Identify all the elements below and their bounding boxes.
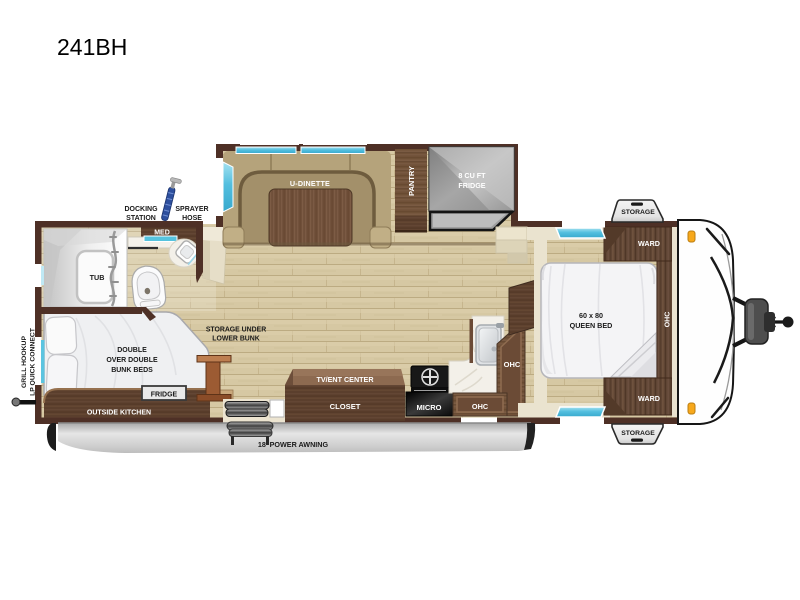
svg-text:SPRAYER: SPRAYER: [175, 206, 208, 213]
svg-text:CLOSET: CLOSET: [330, 402, 361, 411]
svg-text:OUTSIDE KITCHEN: OUTSIDE KITCHEN: [87, 410, 151, 417]
svg-text:HOSE: HOSE: [182, 215, 202, 222]
svg-text:QUEEN BED: QUEEN BED: [570, 321, 613, 330]
svg-text:WARD: WARD: [638, 239, 660, 248]
svg-text:OVER DOUBLE: OVER DOUBLE: [106, 357, 158, 364]
svg-text:TV/ENT CENTER: TV/ENT CENTER: [316, 375, 374, 384]
svg-text:8 CU FT: 8 CU FT: [458, 171, 486, 180]
svg-text:LOWER BUNK: LOWER BUNK: [212, 336, 259, 343]
svg-text:FRIDGE: FRIDGE: [458, 181, 485, 190]
svg-text:PANTRY: PANTRY: [407, 166, 416, 196]
svg-text:OHC: OHC: [472, 402, 489, 411]
svg-text:OHC: OHC: [504, 360, 521, 369]
svg-text:WARD: WARD: [638, 394, 660, 403]
svg-text:U-DINETTE: U-DINETTE: [290, 179, 330, 188]
svg-text:TUB: TUB: [90, 273, 105, 282]
svg-text:STATION: STATION: [126, 215, 156, 222]
svg-text:OHC: OHC: [665, 312, 672, 328]
svg-text:241BH: 241BH: [57, 34, 127, 60]
svg-text:DOCKING: DOCKING: [124, 206, 158, 213]
svg-text:GRILL HOOKUP: GRILL HOOKUP: [21, 336, 28, 388]
svg-text:STORAGE UNDER: STORAGE UNDER: [206, 327, 266, 334]
svg-text:MED: MED: [154, 230, 170, 237]
svg-text:STORAGE: STORAGE: [621, 430, 655, 437]
svg-text:FRIDGE: FRIDGE: [151, 392, 178, 399]
svg-text:DOUBLE: DOUBLE: [117, 347, 147, 354]
svg-text:STORAGE: STORAGE: [621, 209, 655, 216]
svg-text:BUNK BEDS: BUNK BEDS: [111, 367, 153, 374]
svg-text:60 x 80: 60 x 80: [579, 311, 603, 320]
svg-text:MICRO: MICRO: [417, 403, 442, 412]
